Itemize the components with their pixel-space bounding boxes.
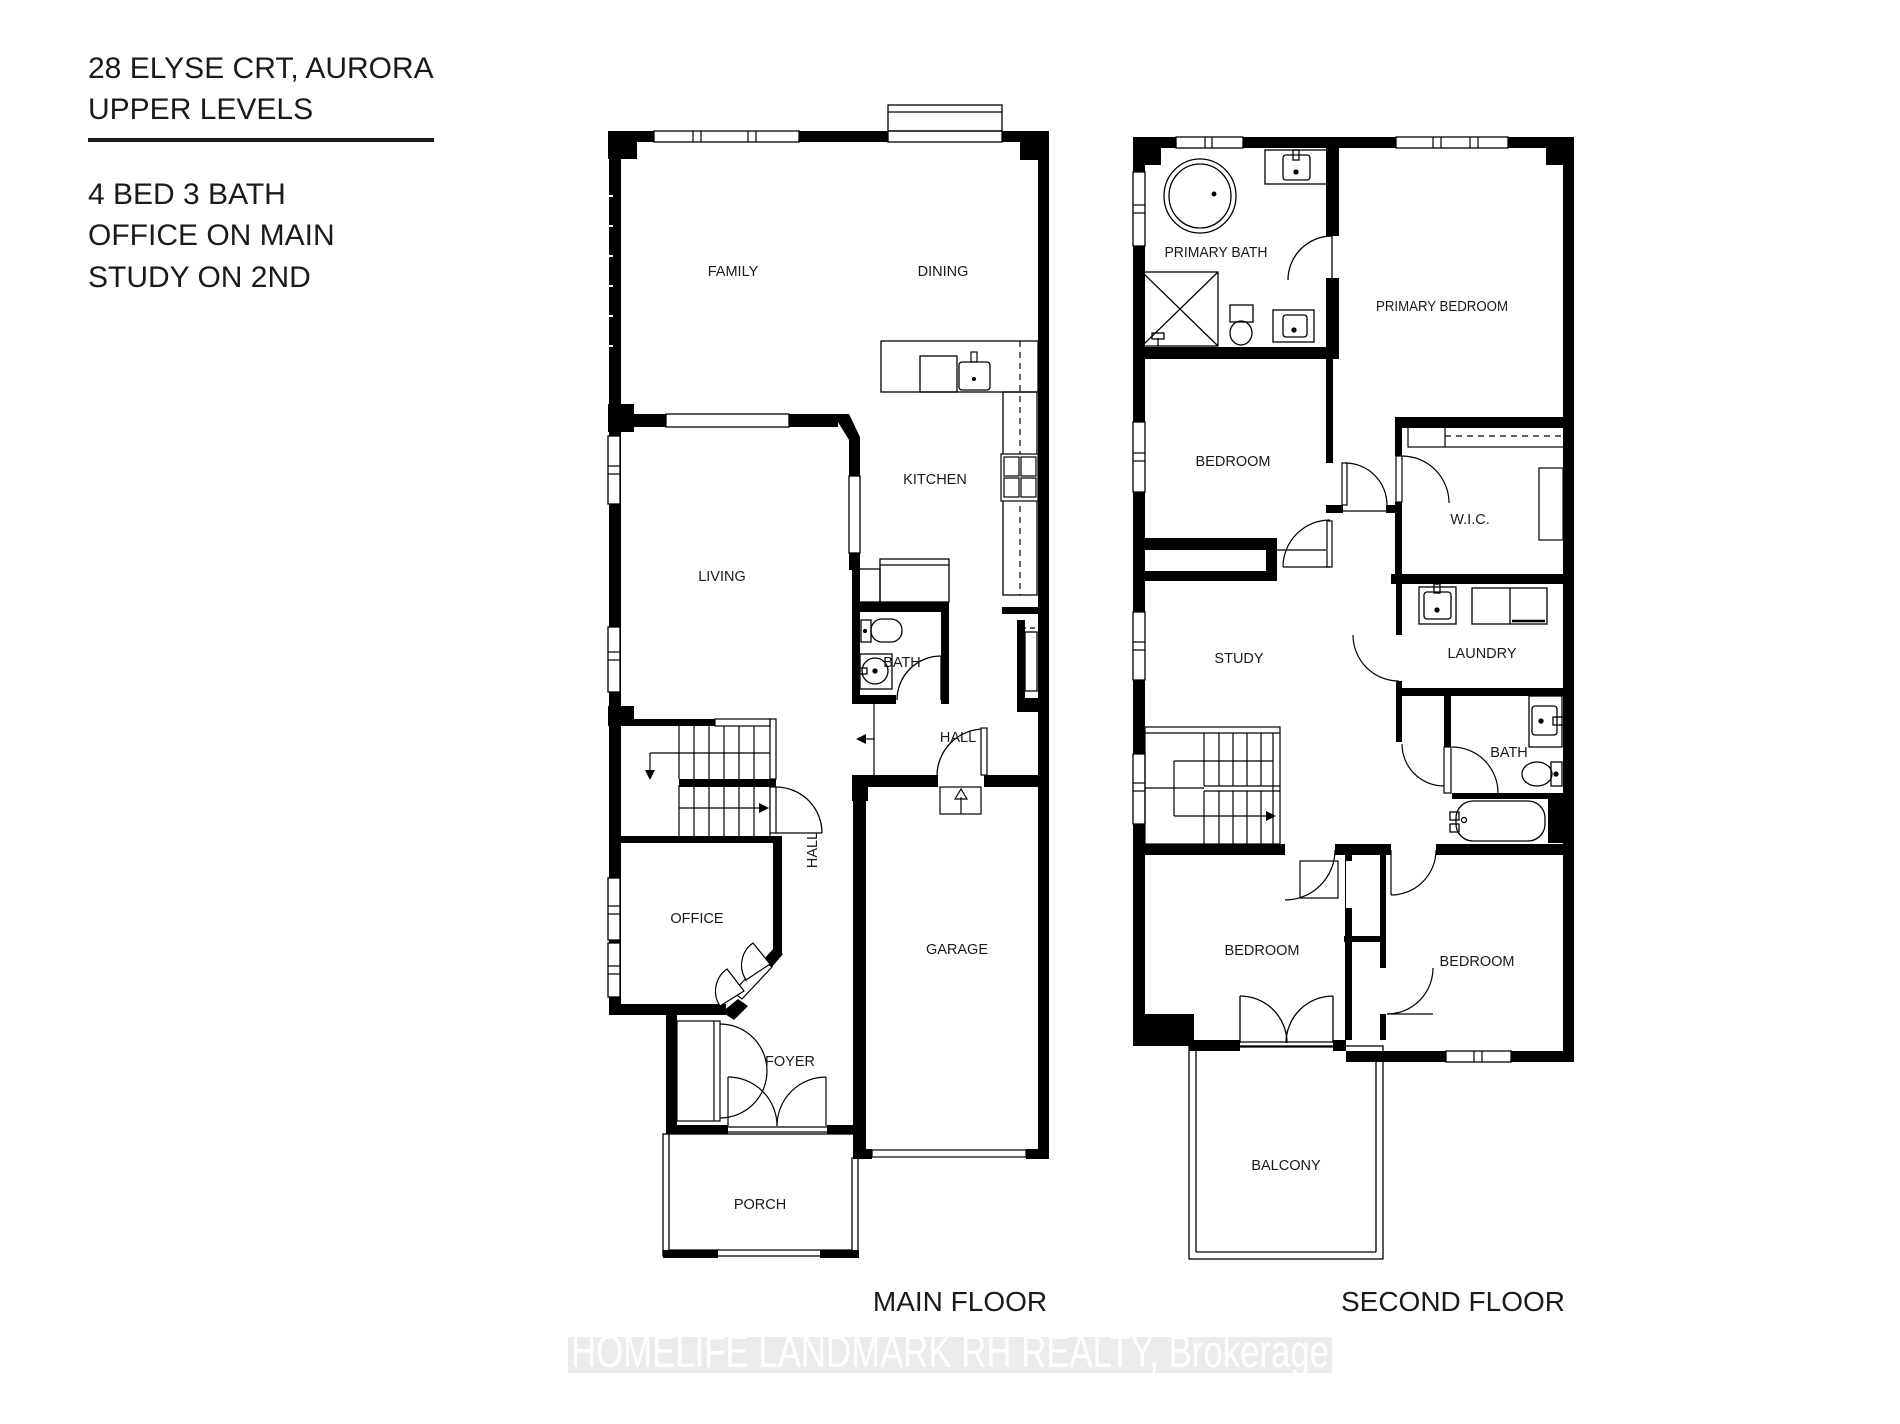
svg-text:OFFICE ON MAIN: OFFICE ON MAIN: [88, 219, 335, 252]
svg-text:UPPER LEVELS: UPPER LEVELS: [88, 93, 313, 126]
svg-text:KITCHEN: KITCHEN: [903, 472, 967, 488]
svg-text:OFFICE: OFFICE: [670, 911, 723, 927]
svg-text:BATH: BATH: [883, 655, 921, 671]
svg-text:BALCONY: BALCONY: [1251, 1158, 1321, 1174]
svg-text:28 ELYSE CRT, AURORA: 28 ELYSE CRT, AURORA: [88, 52, 434, 85]
svg-text:BEDROOM: BEDROOM: [1225, 943, 1300, 959]
svg-text:SECOND FLOOR: SECOND FLOOR: [1341, 1286, 1565, 1317]
svg-text:MAIN FLOOR: MAIN FLOOR: [873, 1286, 1047, 1317]
svg-text:LAUNDRY: LAUNDRY: [1447, 646, 1516, 662]
svg-text:BEDROOM: BEDROOM: [1440, 954, 1515, 970]
svg-text:W.I.C.: W.I.C.: [1450, 512, 1489, 528]
svg-text:PORCH: PORCH: [734, 1197, 786, 1213]
svg-text:FAMILY: FAMILY: [708, 264, 759, 280]
svg-text:HALL: HALL: [940, 730, 976, 746]
svg-text:DINING: DINING: [918, 264, 969, 280]
svg-text:PRIMARY BEDROOM: PRIMARY BEDROOM: [1376, 299, 1508, 315]
svg-text:4 BED 3 BATH: 4 BED 3 BATH: [88, 178, 286, 211]
svg-text:GARAGE: GARAGE: [926, 942, 988, 958]
svg-text:BATH: BATH: [1490, 745, 1528, 761]
svg-text:STUDY ON 2ND: STUDY ON 2ND: [88, 261, 311, 294]
svg-text:HOMELIFE LANDMARK RH REALTY, B: HOMELIFE LANDMARK RH REALTY, Brokerage: [571, 1326, 1329, 1377]
svg-text:LIVING: LIVING: [698, 569, 746, 585]
svg-text:BEDROOM: BEDROOM: [1196, 454, 1271, 470]
svg-text:PRIMARY BATH: PRIMARY BATH: [1165, 245, 1268, 261]
svg-text:HALL: HALL: [805, 832, 821, 868]
svg-text:STUDY: STUDY: [1214, 651, 1263, 667]
svg-text:FOYER: FOYER: [765, 1054, 815, 1070]
